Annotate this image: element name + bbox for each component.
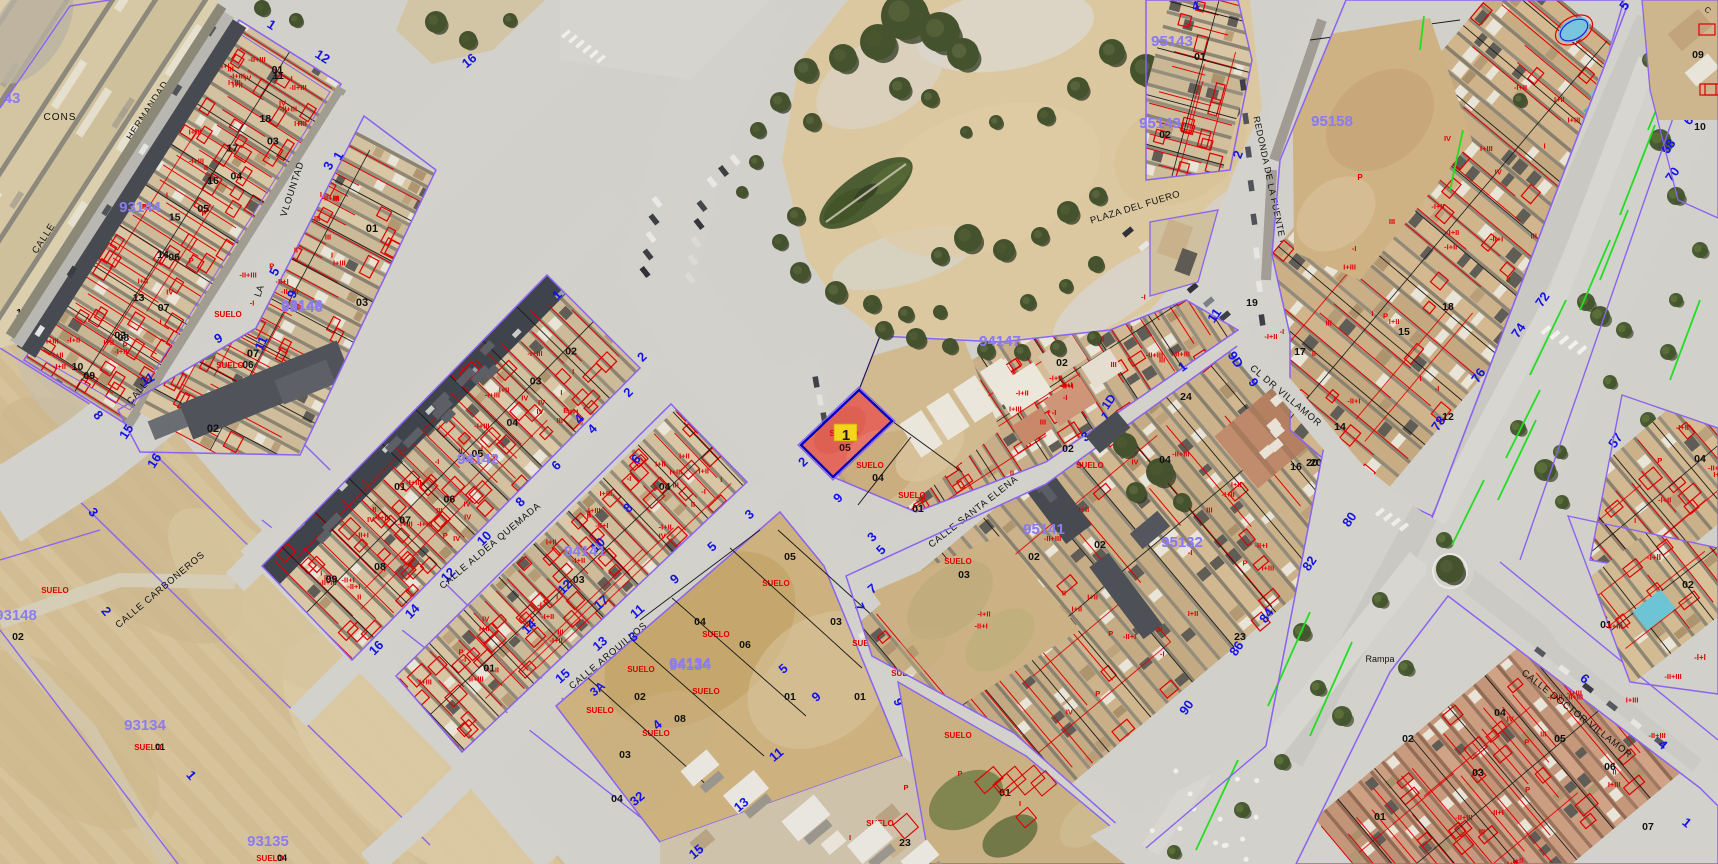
svg-text:III: III [557,416,563,425]
svg-text:III: III [1040,418,1046,427]
svg-text:I: I [331,250,333,259]
svg-text:07: 07 [1642,821,1654,833]
svg-text:SUELO: SUELO [856,461,884,470]
svg-text:-II+I: -II+I [1060,382,1073,391]
svg-text:-I: -I [250,298,255,307]
svg-text:III: III [436,506,442,515]
svg-text:I: I [1634,516,1636,525]
svg-text:IV: IV [453,534,460,543]
svg-text:04: 04 [659,481,671,493]
svg-text:02: 02 [207,423,219,435]
svg-text:02: 02 [1094,539,1106,551]
svg-text:I: I [720,475,722,484]
svg-text:-I+II: -I+II [1514,83,1527,92]
svg-text:01: 01 [854,691,866,703]
svg-text:I: I [160,317,162,326]
svg-text:24: 24 [1180,391,1192,403]
svg-text:05: 05 [784,551,796,563]
svg-text:II: II [1062,589,1066,598]
svg-text:IV: IV [659,532,666,541]
svg-text:I+II: I+II [138,277,149,286]
svg-text:I: I [1371,309,1373,318]
svg-text:09: 09 [1692,49,1704,61]
svg-text:-II+III: -II+III [1605,621,1622,630]
svg-text:-I+II: -I+II [1658,496,1671,505]
svg-text:I: I [1420,374,1422,383]
svg-text:P: P [1657,456,1662,465]
svg-text:14: 14 [1334,421,1346,433]
svg-text:-I+II: -I+II [1505,860,1518,864]
svg-text:-I: -I [1435,384,1440,393]
svg-text:I: I [849,833,851,842]
svg-text:P: P [1524,737,1529,746]
svg-text:P: P [1383,312,1388,321]
svg-text:-I: -I [435,457,440,466]
svg-text:I: I [320,190,322,199]
svg-text:10: 10 [72,361,84,373]
svg-text:18: 18 [259,113,271,125]
svg-text:-I+II: -I+II [1647,553,1661,562]
svg-text:01: 01 [1374,811,1386,823]
svg-text:-II+III: -II+III [1664,672,1681,681]
svg-text:08: 08 [674,713,686,725]
svg-text:-II+III: -II+III [1172,450,1189,459]
svg-text:P: P [1108,629,1113,638]
svg-text:-I: -I [537,601,542,610]
svg-text:P: P [1525,785,1530,794]
svg-text:03: 03 [530,376,542,388]
svg-text:16: 16 [207,175,219,187]
svg-text:P: P [443,531,448,540]
svg-text:02: 02 [634,691,646,703]
svg-text:II: II [691,500,695,509]
svg-text:II: II [587,509,591,518]
svg-text:I+II: I+II [53,351,64,360]
svg-text:02: 02 [1056,357,1068,369]
svg-text:01: 01 [912,503,924,515]
svg-text:CONS: CONS [44,112,77,123]
svg-text:IV: IV [1507,715,1514,724]
svg-text:III: III [557,627,563,636]
svg-text:-I: -I [1052,408,1057,417]
svg-text:-I+III: -I+III [189,157,204,166]
svg-text:I+III: I+III [1480,144,1493,153]
svg-text:93144: 93144 [119,199,161,216]
svg-text:01: 01 [155,742,165,752]
svg-text:13: 13 [133,292,145,304]
svg-text:I+II: I+II [1554,95,1565,104]
svg-text:02: 02 [12,631,24,643]
svg-text:95143: 95143 [1151,33,1193,50]
svg-text:I: I [1544,142,1546,151]
svg-text:I+III: I+III [1713,470,1718,479]
svg-text:II: II [204,163,208,172]
svg-text:-II+I: -II+I [975,622,988,631]
svg-text:-I+III: -I+III [474,422,489,431]
svg-text:-I+II: -I+II [659,523,672,532]
svg-text:01: 01 [483,662,495,674]
svg-text:Rampa: Rampa [1365,654,1394,664]
svg-text:-II+I: -II+I [1490,235,1503,244]
svg-text:II: II [1312,349,1316,358]
svg-text:-I+II: -I+II [1676,423,1689,432]
svg-text:06: 06 [242,360,254,371]
svg-text:IV: IV [538,398,545,407]
svg-text:05: 05 [839,442,851,454]
svg-text:-II+III: -II+III [466,675,483,684]
svg-text:I+III: I+III [419,678,432,687]
svg-text:III: III [1389,217,1395,226]
svg-text:P: P [298,119,303,128]
svg-text:I+II: I+II [1389,317,1400,326]
svg-text:III: III [673,480,679,489]
svg-text:I+II: I+II [1079,505,1090,514]
svg-text:IV: IV [521,394,528,403]
svg-text:-II+III: -II+III [289,83,306,92]
svg-text:IV: IV [1131,457,1138,466]
svg-text:08: 08 [118,332,130,344]
svg-text:14: 14 [157,249,169,261]
svg-text:08: 08 [374,561,386,573]
svg-text:SUELO: SUELO [216,361,244,370]
svg-text:I+II: I+II [698,466,709,475]
svg-text:I+III: I+III [1343,263,1356,272]
svg-text:94147: 94147 [979,333,1021,350]
svg-text:06: 06 [739,639,751,651]
svg-text:-II+III: -II+III [1173,350,1190,359]
svg-text:IV: IV [166,287,173,296]
svg-text:94141: 94141 [564,543,606,560]
svg-text:I+II: I+II [1071,604,1082,613]
svg-text:-II+III: -II+III [1648,731,1665,740]
svg-text:16: 16 [1290,461,1302,473]
svg-text:-I: -I [627,474,632,483]
svg-text:IV: IV [1495,167,1502,176]
svg-text:IV: IV [536,407,543,416]
svg-text:04: 04 [230,170,242,182]
svg-text:-I+III: -I+III [230,72,245,81]
svg-text:-I+III: -I+III [417,519,432,528]
svg-text:-II+I: -II+I [342,576,355,585]
svg-text:95141: 95141 [1023,521,1065,538]
svg-text:IV: IV [482,615,489,624]
svg-text:03: 03 [267,135,279,147]
svg-text:II: II [357,593,361,602]
svg-text:I+II: I+II [479,624,490,633]
svg-text:-II+III: -II+III [321,194,338,203]
svg-text:-I+III: -I+III [485,391,500,400]
svg-text:I: I [560,388,562,397]
svg-text:I+III: I+III [333,259,346,268]
svg-text:04: 04 [1694,453,1706,465]
svg-text:III: III [1540,730,1546,739]
svg-text:-I+II: -I+II [550,636,563,645]
svg-text:03: 03 [573,574,585,586]
svg-text:93146: 93146 [281,297,323,314]
svg-text:SUELO: SUELO [944,557,972,566]
svg-text:P: P [189,256,194,265]
svg-text:-I+II: -I+II [1049,373,1062,382]
svg-text:II: II [294,246,298,255]
svg-text:I+III: I+III [670,468,683,477]
svg-text:18: 18 [1442,301,1454,313]
svg-text:-II+I: -II+I [356,530,369,539]
svg-text:I: I [1334,394,1336,403]
svg-text:93148: 93148 [0,607,37,624]
svg-text:-I: -I [1352,244,1357,253]
svg-text:-I+II: -I+II [977,610,990,619]
svg-text:IV: IV [464,499,471,508]
svg-text:15: 15 [169,212,181,224]
svg-text:I+II: I+II [499,386,510,395]
svg-text:-I+II: -I+II [1222,490,1235,499]
svg-text:01: 01 [1194,51,1206,63]
svg-text:04: 04 [506,417,518,429]
svg-text:I+II: I+II [655,460,666,469]
svg-text:-II+I: -II+I [1491,808,1504,817]
svg-text:03: 03 [958,569,970,581]
svg-text:I+II: I+II [103,338,114,347]
svg-text:SUELO: SUELO [586,706,614,715]
svg-text:SUELO: SUELO [692,687,720,696]
svg-text:95158: 95158 [1311,113,1353,130]
svg-text:P: P [903,783,908,792]
svg-text:IV: IV [367,515,374,524]
svg-text:94142: 94142 [457,451,499,468]
svg-text:02: 02 [1682,579,1694,591]
svg-text:-II+I: -II+I [1347,397,1360,406]
svg-text:III: III [1326,319,1332,328]
svg-text:I: I [556,593,558,602]
svg-text:-I: -I [701,487,706,496]
svg-text:-II+III: -II+III [280,105,297,114]
svg-text:04: 04 [1494,707,1506,719]
svg-text:I: I [572,367,574,376]
svg-text:15: 15 [1398,326,1410,338]
svg-text:IV: IV [244,74,251,83]
svg-text:09: 09 [326,573,338,585]
svg-text:03: 03 [619,749,631,761]
svg-text:07: 07 [158,302,170,314]
svg-text:-I+II: -I+II [541,612,554,621]
svg-text:III: III [1156,625,1162,634]
svg-text:P: P [1357,173,1363,182]
svg-text:-II+I: -II+I [1123,632,1136,641]
svg-text:P: P [458,647,463,656]
svg-text:I+III: I+III [1009,405,1022,414]
svg-text:93135: 93135 [247,833,289,850]
svg-text:SUELO: SUELO [627,665,655,674]
svg-text:95132: 95132 [1161,534,1203,551]
svg-text:05: 05 [197,203,209,215]
svg-text:02: 02 [1062,443,1074,455]
svg-text:-I+II: -I+II [114,347,127,356]
svg-text:-I+II: -I+II [1264,332,1277,341]
svg-text:01: 01 [366,223,378,235]
svg-text:07: 07 [399,514,411,526]
svg-text:-I: -I [1063,393,1068,402]
svg-text:SUELO: SUELO [762,579,790,588]
svg-text:III: III [1110,360,1116,369]
svg-text:I+III: I+III [1626,695,1639,704]
svg-text:-II+I: -II+I [1255,541,1268,550]
svg-text:-I: -I [1141,292,1146,301]
svg-text:I+III: I+III [189,127,202,136]
svg-text:P: P [1095,689,1100,698]
svg-text:-I+II: -I+II [1446,228,1459,237]
svg-text:SUELO: SUELO [1076,461,1104,470]
svg-text:-I+I: -I+I [1694,653,1706,662]
svg-text:03: 03 [1472,767,1484,779]
svg-text:P: P [957,769,962,778]
svg-text:17: 17 [1294,346,1306,358]
svg-text:05: 05 [1554,733,1566,745]
svg-text:04: 04 [277,853,287,863]
svg-text:-II+I: -II+I [276,277,289,286]
svg-text:I+II: I+II [1188,609,1199,618]
svg-text:-I: -I [1160,649,1165,658]
svg-text:17: 17 [227,142,239,154]
svg-text:I: I [1131,324,1133,333]
svg-text:-II+III: -II+III [239,271,256,280]
svg-text:-II+III: -II+III [248,55,265,64]
svg-text:III: III [1159,356,1165,365]
svg-text:SUELO: SUELO [702,630,730,639]
svg-text:-I: -I [1280,327,1285,336]
svg-text:-I+II: -I+II [1444,242,1457,251]
svg-text:IV: IV [1444,134,1451,143]
svg-text:III: III [1531,231,1537,240]
svg-text:-II+I: -II+I [595,521,608,530]
svg-text:I+III: I+III [1261,564,1274,573]
svg-text:20: 20 [1306,457,1318,469]
svg-text:I+II: I+II [546,538,557,547]
svg-text:06: 06 [444,494,456,506]
svg-text:P: P [1242,558,1247,567]
svg-text:04: 04 [872,472,884,484]
svg-text:06: 06 [168,252,180,264]
svg-text:I+II: I+II [1231,480,1242,489]
svg-text:-I+II: -I+II [375,513,388,522]
svg-text:SUELO: SUELO [214,310,242,319]
svg-text:19: 19 [1246,297,1258,309]
svg-text:-I: -I [288,74,293,83]
svg-text:03: 03 [830,616,842,628]
svg-text:-I+II: -I+II [1016,388,1029,397]
svg-text:SUELO: SUELO [41,586,69,595]
svg-text:10: 10 [1694,121,1706,133]
svg-text:-I+II: -I+II [67,336,80,345]
svg-text:I+III: I+III [1568,115,1581,124]
svg-text:04: 04 [1159,454,1171,466]
svg-text:I+III: I+III [599,489,612,498]
svg-text:II: II [1506,275,1510,284]
svg-text:I: I [1019,799,1021,808]
svg-text:94134: 94134 [669,655,711,672]
svg-text:IV: IV [464,512,471,521]
svg-text:-II+III: -II+III [1455,813,1472,822]
svg-text:-I+II: -I+II [53,362,66,371]
svg-text:SUELO: SUELO [898,491,926,500]
svg-text:02: 02 [565,346,577,358]
svg-text:III: III [325,233,331,242]
svg-text:02: 02 [1028,551,1040,563]
svg-text:02: 02 [1402,733,1414,745]
svg-text:I: I [166,191,168,200]
svg-text:11: 11 [273,70,284,82]
svg-text:95143: 95143 [1139,115,1181,132]
svg-text:-I+III: -I+III [527,349,542,358]
svg-text:III: III [1479,827,1485,836]
svg-text:06: 06 [1604,761,1616,773]
svg-text:SUELO: SUELO [944,731,972,740]
svg-text:I+III: I+III [1608,780,1621,789]
svg-text:-I+II: -I+II [1431,202,1444,211]
svg-text:II: II [495,666,499,675]
svg-text:I+II: I+II [1087,593,1098,602]
svg-text:-I+III: -I+III [406,478,421,487]
svg-text:01: 01 [784,691,796,703]
svg-text:I+II: I+II [679,452,690,461]
svg-text:93134: 93134 [124,717,166,734]
svg-text:III: III [1206,505,1212,514]
svg-text:I: I [320,569,322,578]
svg-text:04: 04 [611,793,623,805]
svg-text:01: 01 [394,481,406,493]
svg-text:09: 09 [83,370,95,382]
svg-text:III: III [314,214,320,223]
svg-text:03: 03 [356,297,368,309]
svg-text:IV: IV [1066,708,1073,717]
